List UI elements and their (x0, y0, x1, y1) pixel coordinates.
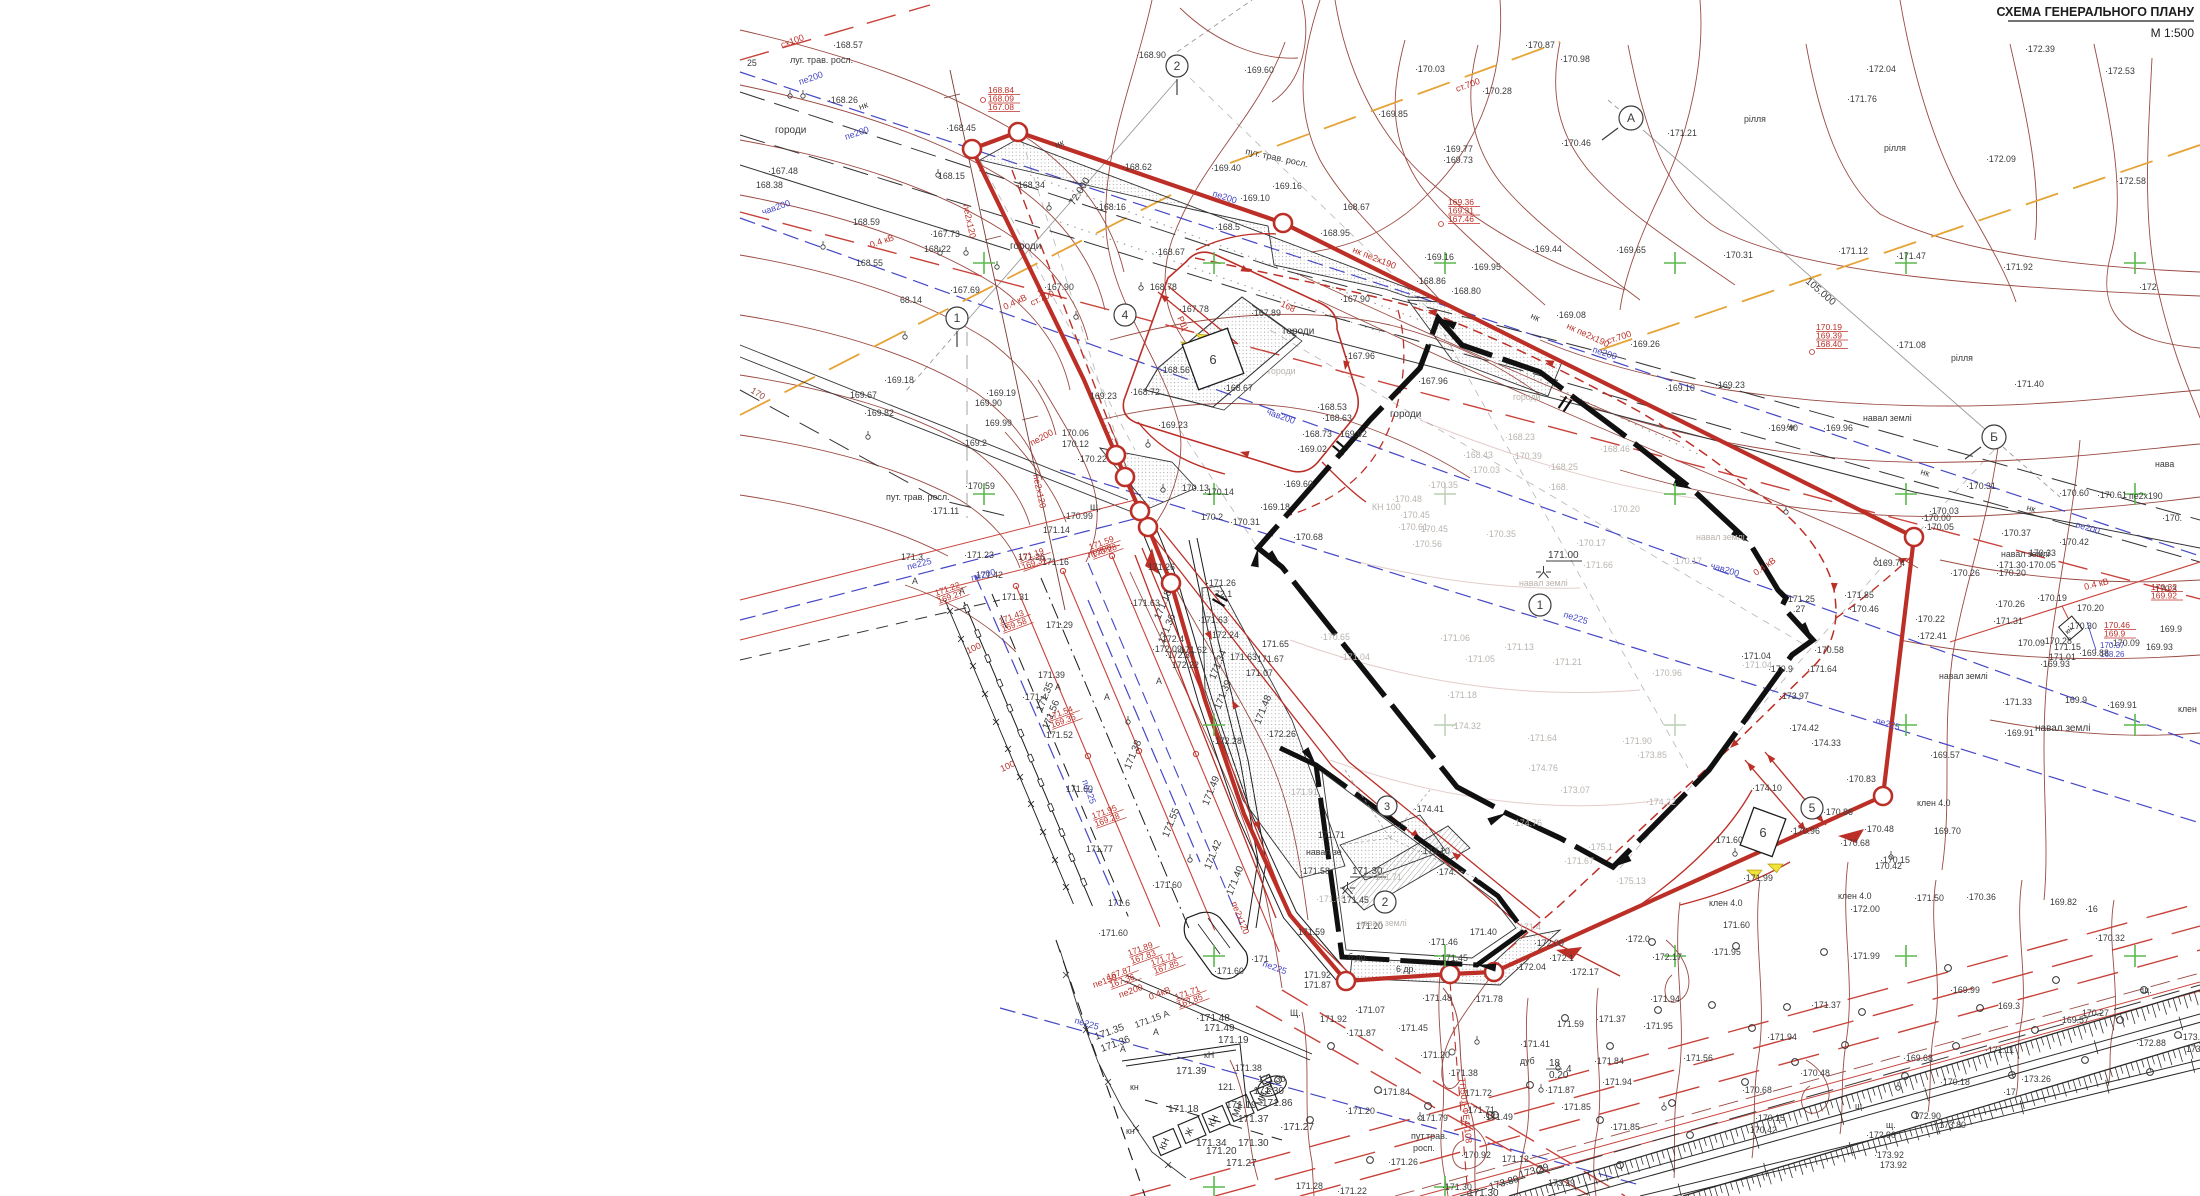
svg-text:·171.48: ·171.48 (1196, 1013, 1230, 1024)
svg-text:·171.76: ·171.76 (1847, 94, 1877, 104)
svg-text:·168.80: ·168.80 (1451, 286, 1481, 296)
svg-text:·171.30: ·171.30 (1250, 1086, 1284, 1097)
svg-text:·168.23: ·168.23 (1505, 432, 1535, 442)
svg-text:·169.44: ·169.44 (1532, 244, 1562, 254)
svg-text:·167.96: ·167.96 (1418, 376, 1448, 386)
svg-text:·169.57: ·169.57 (2059, 1015, 2089, 1025)
svg-text:·167.73: ·167.73 (930, 229, 960, 239)
svg-text:171.6: 171.6 (1108, 898, 1130, 908)
svg-text:·170.99: ·170.99 (1063, 511, 1093, 521)
svg-text:клен 4.0: клен 4.0 (1838, 891, 1872, 901)
svg-text:навал землі: навал землі (2001, 549, 2050, 559)
svg-text:·170.68: ·170.68 (1840, 838, 1870, 848)
svg-text:·170.03: ·170.03 (1415, 64, 1445, 74)
svg-text:169.9: 169.9 (2104, 629, 2126, 639)
svg-text:А: А (1153, 1027, 1159, 1037)
svg-text:·174.76: ·174.76 (1512, 818, 1542, 828)
svg-text:кн: кн (1130, 1082, 1139, 1092)
svg-text:навал землі: навал землі (1519, 578, 1568, 588)
svg-text:кН: кН (1204, 1050, 1214, 1060)
svg-text:171.12: 171.12 (1502, 1154, 1529, 1164)
svg-text:навал землі: навал землі (2035, 723, 2090, 734)
svg-text:·170.31: ·170.31 (1230, 517, 1260, 527)
svg-text:·171.06: ·171.06 (1440, 633, 1470, 643)
svg-text:·171.60: ·171.60 (1713, 835, 1743, 845)
svg-text:·169.02: ·169.02 (1297, 444, 1327, 454)
svg-text:171.59: 171.59 (1557, 1019, 1584, 1029)
svg-text:·172.88: ·172.88 (2136, 1038, 2166, 1048)
svg-text:171.71: 171.71 (1318, 830, 1345, 840)
svg-text:·169.08: ·169.08 (1556, 310, 1586, 320)
svg-text:·171.85: ·171.85 (1561, 1102, 1591, 1112)
svg-text:171.87: 171.87 (1304, 980, 1331, 990)
svg-text:·172.04: ·172.04 (1516, 962, 1546, 972)
svg-text:·171.33: ·171.33 (2002, 697, 2032, 707)
svg-text:·171.64: ·171.64 (1807, 664, 1837, 674)
svg-text:·170.46: ·170.46 (1561, 138, 1591, 148)
svg-text:·171.37: ·171.37 (1811, 1000, 1841, 1010)
svg-text:1: 1 (1537, 598, 1544, 612)
svg-text:·171.94: ·171.94 (1650, 994, 1680, 1004)
svg-text:·170.45: ·170.45 (1418, 524, 1448, 534)
svg-text:росп.: росп. (1413, 1143, 1435, 1153)
svg-text:168.40: 168.40 (1816, 339, 1842, 349)
svg-text:·169.18: ·169.18 (1260, 502, 1290, 512)
svg-text:·174.32: ·174.32 (1451, 721, 1481, 731)
svg-text:·169.60: ·169.60 (1283, 479, 1313, 489)
svg-text:171.07: 171.07 (1246, 668, 1273, 678)
svg-text:городи: городи (1283, 326, 1314, 337)
svg-text:170.13: 170.13 (1182, 483, 1209, 493)
svg-text:·168.67: ·168.67 (1155, 247, 1185, 257)
svg-text:·168.95: ·168.95 (1320, 228, 1350, 238)
svg-text:·168.26: ·168.26 (828, 95, 858, 105)
svg-text:городи: городи (1010, 241, 1041, 252)
svg-text:170.12: 170.12 (1062, 439, 1089, 449)
svg-text:·169.95: ·169.95 (1471, 262, 1501, 272)
svg-text:пут.трав.: пут.трав. (1411, 1131, 1447, 1141)
svg-text:·171.13: ·171.13 (1504, 642, 1534, 652)
svg-text:клен 4.0: клен 4.0 (1709, 898, 1743, 908)
svg-text:А: А (912, 576, 918, 586)
svg-text:·167.89: ·167.89 (1251, 308, 1281, 318)
svg-text:168.22: 168.22 (924, 244, 951, 254)
svg-text:171.39: 171.39 (1176, 1066, 1207, 1077)
svg-text:171.65: 171.65 (1262, 639, 1289, 649)
svg-text:·170.28: ·170.28 (2042, 636, 2072, 646)
svg-text:·169.16: ·169.16 (1424, 252, 1454, 262)
svg-text:·168.5: ·168.5 (1215, 222, 1240, 232)
svg-text:·171.45: ·171.45 (1398, 1023, 1428, 1033)
svg-text:169.9: 169.9 (2160, 624, 2182, 634)
svg-text:173.92: 173.92 (1880, 1160, 1907, 1170)
svg-text:·170.96: ·170.96 (1790, 826, 1820, 836)
svg-text:172.22: 172.22 (1172, 660, 1199, 670)
svg-text:·171.11: ·171.11 (930, 506, 959, 516)
svg-text:·170.26: ·170.26 (1995, 599, 2025, 609)
svg-text:·171.79: ·171.79 (1418, 1113, 1448, 1123)
svg-text:·171.78: ·171.78 (1473, 994, 1503, 1004)
svg-text:городи: городи (1390, 409, 1421, 420)
svg-text:·170.45: ·170.45 (1400, 510, 1430, 520)
svg-text:6: 6 (1759, 825, 1766, 840)
svg-text:·167.96: ·167.96 (1345, 351, 1375, 361)
svg-text:·174.10: ·174.10 (1752, 783, 1782, 793)
svg-text:·171.27: ·171.27 (1280, 1122, 1314, 1133)
svg-text:·169.91: ·169.91 (2004, 728, 2034, 738)
svg-text:·171.46: ·171.46 (1428, 937, 1458, 947)
svg-text:·172.09: ·172.09 (1152, 644, 1182, 654)
svg-text:·171.64: ·171.64 (1527, 733, 1557, 743)
svg-text:·170.: ·170. (2162, 513, 2182, 523)
svg-text:рілля: рілля (1744, 114, 1766, 124)
svg-text:·172.58: ·172.58 (2116, 176, 2146, 186)
svg-text:·170.36: ·170.36 (1966, 892, 1996, 902)
svg-text:·167.69: ·167.69 (950, 285, 980, 295)
svg-text:168.38: 168.38 (756, 180, 783, 190)
svg-text:169.3: 169.3 (1998, 1001, 2020, 1011)
svg-text:·169.23: ·169.23 (1158, 420, 1188, 430)
svg-text:·171.21: ·171.21 (1667, 128, 1697, 138)
svg-text:169.74: 169.74 (1878, 558, 1905, 568)
svg-text:·171.95: ·171.95 (1643, 1021, 1673, 1031)
svg-text:городи: городи (1513, 392, 1541, 402)
svg-text:·174.41: ·174.41 (1414, 804, 1444, 814)
svg-text:·171.87: ·171.87 (1346, 1028, 1376, 1038)
svg-text:щ.: щ. (1886, 1120, 1896, 1130)
svg-text:·172.0: ·172.0 (1625, 934, 1650, 944)
svg-text:171.77: 171.77 (1086, 844, 1113, 854)
svg-text:171.60: 171.60 (1723, 920, 1750, 930)
svg-text:170.2: 170.2 (1201, 512, 1223, 522)
svg-text:·172.00: ·172.00 (1534, 938, 1564, 948)
svg-text:СХЕМА ГЕНЕРАЛЬНОГО ПЛАНУ: СХЕМА ГЕНЕРАЛЬНОГО ПЛАНУ (1996, 5, 2194, 19)
svg-text:·172.26: ·172.26 (1266, 729, 1296, 739)
svg-text:171.31: 171.31 (1002, 592, 1029, 602)
svg-text:·170.37: ·170.37 (2001, 528, 2031, 538)
svg-text:171.30: 171.30 (1238, 1138, 1269, 1149)
svg-text:·170.68: ·170.68 (1293, 532, 1323, 542)
svg-text:·171.04: ·171.04 (1340, 652, 1370, 662)
svg-text:171.59: 171.59 (1298, 927, 1325, 937)
svg-text:·171.22: ·171.22 (1337, 1186, 1367, 1196)
svg-text:6 др.: 6 др. (1396, 964, 1416, 974)
svg-text:·171.38: ·171.38 (1232, 1063, 1262, 1073)
svg-text:·171.01: ·171.01 (2046, 652, 2076, 662)
svg-text:·172.90: ·172.90 (1866, 1130, 1896, 1140)
svg-text:·170.46: ·170.46 (1849, 604, 1879, 614)
svg-text:171.92: 171.92 (1320, 1014, 1347, 1024)
svg-text:·170.20: ·170.20 (1996, 568, 2026, 578)
svg-text:·169.96: ·169.96 (1823, 423, 1853, 433)
svg-text:·171.71: ·171.71 (1372, 872, 1402, 882)
svg-text:171.18: 171.18 (1168, 1104, 1199, 1115)
svg-text:169.70: 169.70 (1934, 826, 1961, 836)
svg-text:·173.97: ·173.97 (1779, 691, 1809, 701)
svg-text:·171.07: ·171.07 (1355, 1005, 1385, 1015)
svg-text:171.86: 171.86 (1262, 1098, 1293, 1109)
svg-text:·168.56: ·168.56 (1160, 365, 1190, 375)
svg-text:121.: 121. (1218, 1082, 1236, 1092)
svg-text:·174.10: ·174.10 (1420, 846, 1450, 856)
svg-text:·171.38: ·171.38 (1448, 1068, 1478, 1078)
svg-text:4: 4 (1122, 308, 1129, 322)
svg-text:·170.32: ·170.32 (2095, 933, 2125, 943)
svg-text:·168.53: ·168.53 (1317, 402, 1347, 412)
svg-text:·170.83: ·170.83 (1846, 774, 1876, 784)
svg-text:171.19: 171.19 (1218, 1035, 1249, 1046)
svg-text:·169.26: ·169.26 (1630, 339, 1660, 349)
svg-text:·171.67: ·171.67 (1564, 856, 1594, 866)
svg-text:172.90: 172.90 (1914, 1111, 1941, 1121)
svg-text:168.78: 168.78 (1150, 282, 1177, 292)
svg-text:щ.: щ. (1855, 1101, 1865, 1111)
svg-text:рілля: рілля (1951, 353, 1973, 363)
svg-text:173.80: 173.80 (1939, 1120, 1966, 1130)
svg-text:·168.45: ·168.45 (946, 123, 976, 133)
svg-text:·171.56: ·171.56 (1683, 1053, 1713, 1063)
svg-text:·171.87: ·171.87 (1545, 1085, 1575, 1095)
svg-text:169.93: 169.93 (2146, 642, 2173, 652)
svg-text:·170.98: ·170.98 (1560, 54, 1590, 64)
svg-text:А: А (1104, 692, 1110, 702)
svg-text:·172.09: ·172.09 (1986, 154, 2016, 164)
svg-text:·170.86: ·170.86 (1823, 807, 1853, 817)
svg-text:·168.43: ·168.43 (1463, 450, 1493, 460)
svg-text:·171.05: ·171.05 (1465, 654, 1495, 664)
svg-text:·171.85: ·171.85 (1844, 590, 1874, 600)
svg-text:·168.62: ·168.62 (1122, 162, 1152, 172)
svg-text:·171.99: ·171.99 (1850, 951, 1880, 961)
svg-text:·171.08: ·171.08 (1896, 340, 1926, 350)
svg-text:170.06: 170.06 (1062, 428, 1089, 438)
svg-text:169.99: 169.99 (985, 418, 1012, 428)
svg-text:КН 100: КН 100 (1372, 502, 1401, 512)
svg-text:171.45: 171.45 (1342, 895, 1369, 905)
svg-text:·170.31: ·170.31 (1966, 481, 1996, 491)
svg-text:·170.92: ·170.92 (1461, 1150, 1491, 1160)
svg-text:·170.35: ·170.35 (1486, 529, 1516, 539)
svg-text:171.34: 171.34 (1196, 1138, 1227, 1149)
svg-text:·171.95: ·171.95 (1711, 947, 1741, 957)
svg-text:·170.48: ·170.48 (1864, 824, 1894, 834)
svg-text:·169.73: ·169.73 (1443, 155, 1473, 165)
svg-text:171.63: 171.63 (1230, 652, 1257, 662)
svg-text:18: 18 (1549, 1058, 1561, 1069)
svg-text:169.23: 169.23 (1090, 391, 1117, 401)
svg-text:городи: городи (775, 125, 806, 136)
svg-text:·171.63: ·171.63 (1130, 598, 1160, 608)
svg-text:171.25: 171.25 (1788, 594, 1815, 604)
svg-text:173.29: 173.29 (1548, 1178, 1575, 1188)
svg-text:68.14: 68.14 (900, 295, 922, 305)
svg-text:4: 4 (1566, 1064, 1572, 1075)
svg-text:·171.58: ·171.58 (1300, 866, 1330, 876)
svg-text:168.15: 168.15 (938, 171, 965, 181)
svg-text:·172.28: ·172.28 (1212, 736, 1242, 746)
svg-text:·170.59: ·170.59 (965, 481, 995, 491)
svg-text:171.49: 171.49 (1204, 1023, 1235, 1034)
svg-text:·174.76: ·174.76 (1528, 763, 1558, 773)
svg-text:171.29: 171.29 (1046, 620, 1073, 630)
svg-text:·171.26: ·171.26 (1388, 1157, 1418, 1167)
svg-text:5: 5 (1809, 801, 1816, 815)
svg-text:168.55: 168.55 (856, 258, 883, 268)
svg-text:·170.31: ·170.31 (1723, 250, 1753, 260)
svg-text:·170.60: ·170.60 (2059, 488, 2089, 498)
svg-text:·174.22: ·174.22 (1646, 797, 1676, 807)
svg-text:·172.04: ·172.04 (1866, 64, 1896, 74)
svg-text:·169.91: ·169.91 (2107, 700, 2137, 710)
svg-text:·171.23: ·171.23 (964, 550, 994, 560)
svg-text:·170.87: ·170.87 (1525, 40, 1555, 50)
svg-text:·169.10: ·169.10 (1240, 193, 1270, 203)
svg-text:·171.12: ·171.12 (1838, 246, 1868, 256)
svg-text:·172.39: ·172.39 (2025, 44, 2055, 54)
svg-text:·172.00: ·172.00 (1850, 904, 1880, 914)
svg-text:·171.91: ·171.91 (1288, 787, 1318, 797)
svg-text:·171.11: ·171.11 (1985, 1045, 2014, 1055)
svg-text:·16: ·16 (2085, 904, 2098, 914)
svg-text:·170.05: ·170.05 (2026, 560, 2056, 570)
svg-text:·170.56: ·170.56 (1412, 539, 1442, 549)
svg-text:·171.67: ·171.67 (1254, 654, 1284, 664)
svg-text:·169.77: ·169.77 (1443, 144, 1473, 154)
svg-text:2: 2 (1174, 59, 1181, 73)
svg-text:·170.96: ·170.96 (1652, 668, 1682, 678)
svg-text:171.14: 171.14 (1043, 525, 1070, 535)
svg-text:·167.90: ·167.90 (1340, 294, 1370, 304)
svg-text:·174.: ·174. (1436, 867, 1456, 877)
svg-text:25: 25 (747, 58, 757, 68)
svg-text:·173.07: ·173.07 (1560, 785, 1590, 795)
svg-text:172.24: 172.24 (1212, 630, 1239, 640)
svg-text:·169.2: ·169.2 (962, 438, 987, 448)
svg-text:·171.99: ·171.99 (1743, 873, 1773, 883)
svg-text:·170.26: ·170.26 (1950, 568, 1980, 578)
svg-text:171.27: 171.27 (1226, 1158, 1257, 1169)
svg-text:171.39: 171.39 (1038, 670, 1065, 680)
svg-text:·170.30: ·170.30 (2067, 621, 2097, 631)
svg-text:169.92: 169.92 (1340, 429, 1367, 439)
svg-text:167.08: 167.08 (988, 102, 1014, 112)
svg-text:·175.13: ·175.13 (1616, 876, 1646, 886)
svg-text:·171.63: ·171.63 (1198, 615, 1228, 625)
svg-text:·175.1: ·175.1 (1588, 842, 1613, 852)
svg-text:дуб: дуб (1520, 1056, 1535, 1066)
svg-text:клен 4.0: клен 4.0 (1917, 798, 1951, 808)
svg-text:170.20: 170.20 (2077, 603, 2104, 613)
svg-text:·17: ·17 (2003, 1087, 2016, 1097)
svg-text:·168.25: ·168.25 (1548, 462, 1578, 472)
svg-text:·171.45: ·171.45 (1316, 894, 1346, 904)
svg-text:·171.47: ·171.47 (1896, 251, 1926, 261)
svg-text:·168.73: ·168.73 (1302, 429, 1332, 439)
svg-text:·170.61: ·170.61 (2097, 490, 2127, 500)
svg-text:·170.09: ·170.09 (2110, 638, 2140, 648)
svg-text:·167.78: ·167.78 (1179, 304, 1209, 314)
svg-text:·172.41: ·172.41 (1917, 631, 1947, 641)
svg-text:·170.65: ·170.65 (1320, 632, 1350, 642)
svg-text:·171.18: ·171.18 (1447, 690, 1477, 700)
svg-text:·172.1: ·172.1 (1549, 953, 1574, 963)
svg-text:168.67: 168.67 (1343, 202, 1370, 212)
svg-text:·171.85: ·171.85 (1610, 1122, 1640, 1132)
svg-text:луг. трав. росл.: луг. трав. росл. (790, 55, 853, 65)
svg-text:·170.35: ·170.35 (1428, 480, 1458, 490)
svg-text:·170.58: ·170.58 (1814, 645, 1844, 655)
svg-text:169.90: 169.90 (975, 398, 1002, 408)
svg-text:·170.22: ·170.22 (1915, 614, 1945, 624)
svg-text:Б: Б (1990, 430, 1998, 444)
svg-text:щ.: щ. (1090, 502, 1101, 513)
svg-text:·168.86: ·168.86 (1416, 276, 1446, 286)
svg-text:·171.90: ·171.90 (1622, 736, 1652, 746)
svg-text:171.30: 171.30 (1468, 1188, 1499, 1196)
svg-text:·172.: ·172. (2139, 282, 2159, 292)
svg-text:клен: клен (2178, 704, 2197, 714)
svg-text:·173.9: ·173.9 (2180, 1032, 2200, 1042)
svg-text:·169.60: ·169.60 (1244, 65, 1274, 75)
svg-text:б.др.: б.др. (1348, 952, 1368, 962)
svg-text:·171.50: ·171.50 (1914, 893, 1944, 903)
svg-text:·169.16: ·169.16 (1272, 181, 1302, 191)
svg-text:169.92: 169.92 (2151, 591, 2177, 601)
svg-text:·170.15: ·170.15 (1755, 1113, 1785, 1123)
svg-text:·170.20: ·170.20 (1610, 504, 1640, 514)
svg-text:·170.03: ·170.03 (1470, 465, 1500, 475)
svg-text:·170.19: ·170.19 (2037, 593, 2067, 603)
svg-text:кн: кн (1126, 1126, 1135, 1136)
svg-text:6: 6 (1209, 352, 1216, 367)
svg-text:·171.94: ·171.94 (1602, 1077, 1632, 1087)
svg-text:170.09: 170.09 (2018, 638, 2045, 648)
svg-text:городи: городи (1268, 366, 1296, 376)
svg-text:·169.99: ·169.99 (1950, 985, 1980, 995)
svg-text:А: А (1156, 676, 1162, 686)
svg-text:170.42: 170.42 (1750, 1125, 1777, 1135)
svg-text:169.82: 169.82 (2050, 897, 2077, 907)
svg-text:А: А (1627, 111, 1635, 125)
svg-text:·170.28: ·170.28 (1482, 86, 1512, 96)
svg-text:·168.46: ·168.46 (1600, 444, 1630, 454)
svg-text:·168.34: ·168.34 (1015, 180, 1045, 190)
svg-text:3: 3 (1384, 801, 1390, 813)
svg-text:1: 1 (954, 311, 961, 325)
svg-text:·171.4: ·171.4 (1516, 922, 1541, 932)
svg-text:навал землі: навал землі (1939, 671, 1988, 681)
svg-text:·171.60: ·171.60 (1098, 928, 1128, 938)
svg-text:А: А (1055, 682, 1061, 692)
svg-text:·171.31: ·171.31 (1993, 616, 2023, 626)
svg-text:·174.42: ·174.42 (1789, 723, 1819, 733)
svg-text:2: 2 (1382, 895, 1389, 909)
svg-text:·172.17: ·172.17 (1569, 967, 1599, 977)
svg-text:·169.68: ·169.68 (1903, 1053, 1933, 1063)
svg-text:навал землі: навал землі (1358, 918, 1407, 928)
svg-text:170.42: 170.42 (1875, 861, 1902, 871)
svg-text:171.26: 171.26 (1148, 562, 1175, 572)
svg-text:171.30: 171.30 (1258, 1074, 1286, 1084)
svg-text:·171.04: ·171.04 (1742, 660, 1772, 670)
svg-text:рілля: рілля (1884, 143, 1906, 153)
svg-text:·171.20: ·171.20 (1345, 1106, 1375, 1116)
svg-text:168.59: 168.59 (853, 217, 880, 227)
svg-text:нава: нава (2155, 459, 2174, 469)
svg-text:Щ.: Щ. (1290, 1008, 1301, 1018)
svg-text:пут. трав. росл.: пут. трав. росл. (886, 492, 950, 502)
svg-text:·171.45: ·171.45 (1438, 953, 1468, 963)
